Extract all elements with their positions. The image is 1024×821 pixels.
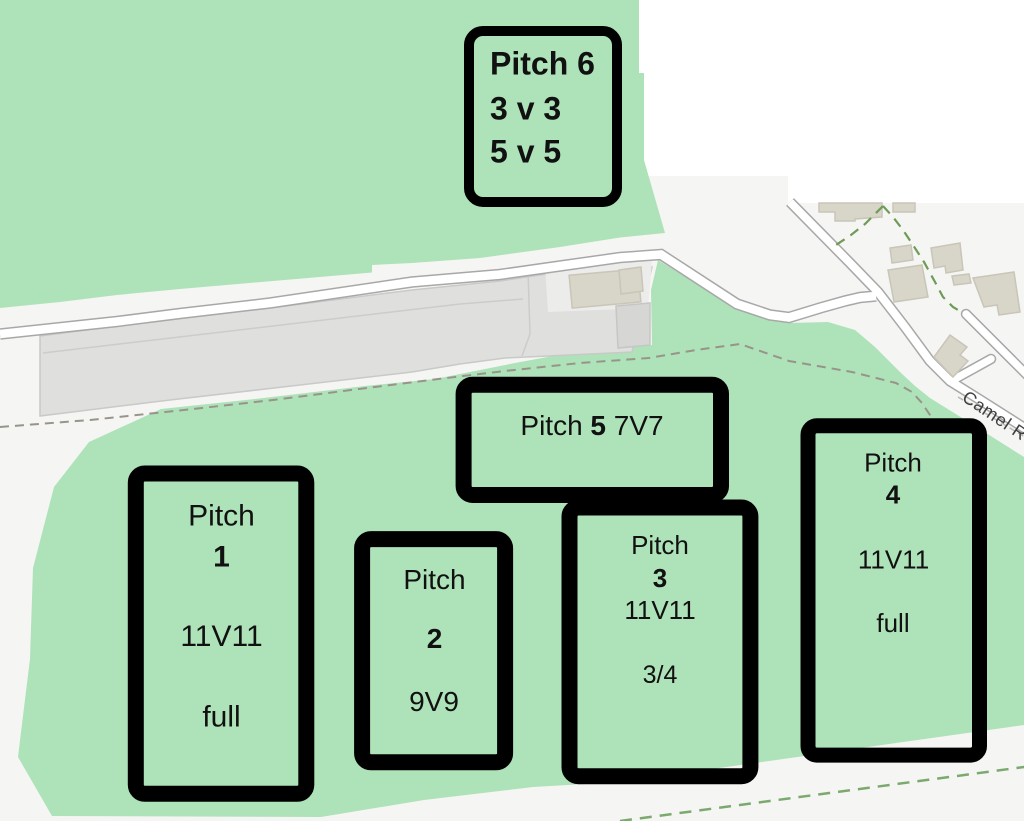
svg-text:Pitch 5 7V7: Pitch 5 7V7 <box>520 410 663 441</box>
svg-text:Pitch: Pitch <box>864 448 922 478</box>
svg-text:Pitch: Pitch <box>188 500 255 533</box>
svg-text:5 v 5: 5 v 5 <box>490 134 561 170</box>
svg-text:11V11: 11V11 <box>180 620 262 653</box>
svg-text:3/4: 3/4 <box>643 661 678 689</box>
svg-text:2: 2 <box>427 623 443 654</box>
svg-text:Pitch: Pitch <box>403 564 465 595</box>
svg-text:1: 1 <box>213 541 230 574</box>
svg-text:Pitch 6: Pitch 6 <box>490 46 595 82</box>
svg-text:11V11: 11V11 <box>858 545 929 575</box>
svg-text:4: 4 <box>886 480 901 510</box>
svg-text:11V11: 11V11 <box>624 595 695 625</box>
svg-text:Pitch: Pitch <box>631 530 689 560</box>
svg-text:3: 3 <box>653 563 667 593</box>
svg-text:3 v 3: 3 v 3 <box>490 91 561 127</box>
svg-text:full: full <box>876 608 909 638</box>
svg-text:full: full <box>202 701 240 734</box>
svg-text:9V9: 9V9 <box>409 686 459 717</box>
